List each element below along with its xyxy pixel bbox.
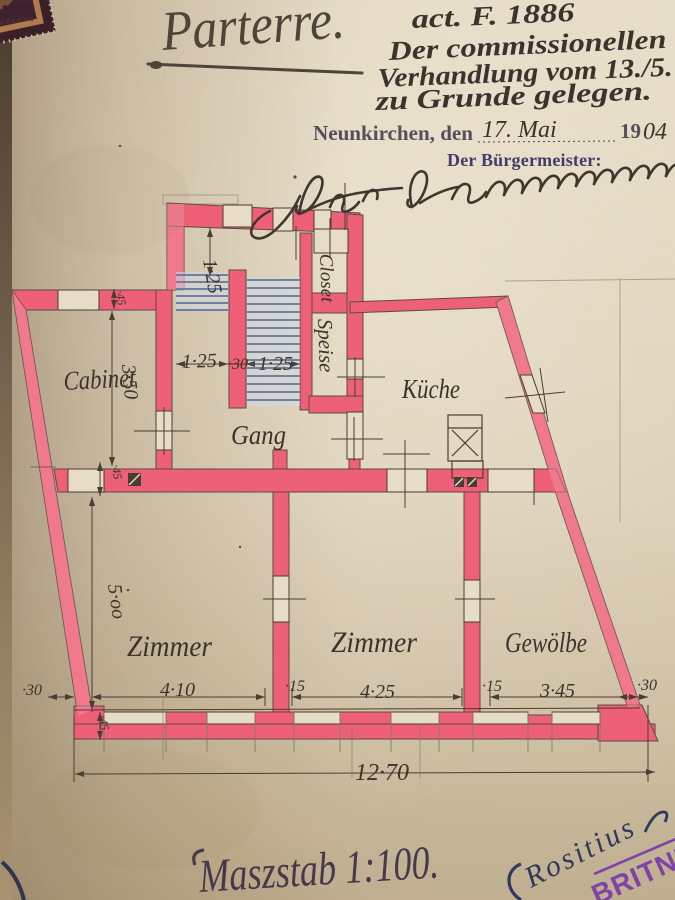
svg-text:Speise: Speise <box>313 318 339 372</box>
svg-text:·30: ·30 <box>22 682 42 699</box>
svg-text:Closet: Closet <box>315 253 338 303</box>
svg-text:Zimmer: Zimmer <box>127 630 212 663</box>
svg-text:·45: ·45 <box>113 289 129 306</box>
svg-text:19: 19 <box>620 119 641 143</box>
svg-text:4·10: 4·10 <box>160 679 195 701</box>
svg-text:3·45: 3·45 <box>539 680 575 702</box>
svg-text:·45: ·45 <box>96 714 112 731</box>
svg-text:Cabinet: Cabinet <box>63 362 138 396</box>
svg-text:Gewölbe: Gewölbe <box>505 627 587 659</box>
svg-text:Zimmer: Zimmer <box>331 626 417 659</box>
svg-text:·15: ·15 <box>285 678 305 695</box>
svg-text:4·25: 4·25 <box>360 681 395 703</box>
svg-text:·15: ·15 <box>482 678 502 695</box>
svg-text:Küche: Küche <box>401 374 460 404</box>
svg-text:12·70: 12·70 <box>355 760 409 786</box>
svg-text:Der Bürgermeister:: Der Bürgermeister: <box>447 150 602 170</box>
svg-text:·30: ·30 <box>637 677 657 694</box>
svg-text:17. Mai: 17. Mai <box>482 117 557 143</box>
svg-text:Neunkirchen, den: Neunkirchen, den <box>313 121 473 145</box>
svg-text:1·25: 1·25 <box>181 350 217 373</box>
svg-text:04: 04 <box>643 119 667 145</box>
svg-text:Gang: Gang <box>231 420 286 450</box>
svg-text:·30: ·30 <box>228 356 248 373</box>
svg-text:·45: ·45 <box>109 463 125 480</box>
svg-text:1·25: 1·25 <box>258 353 293 375</box>
